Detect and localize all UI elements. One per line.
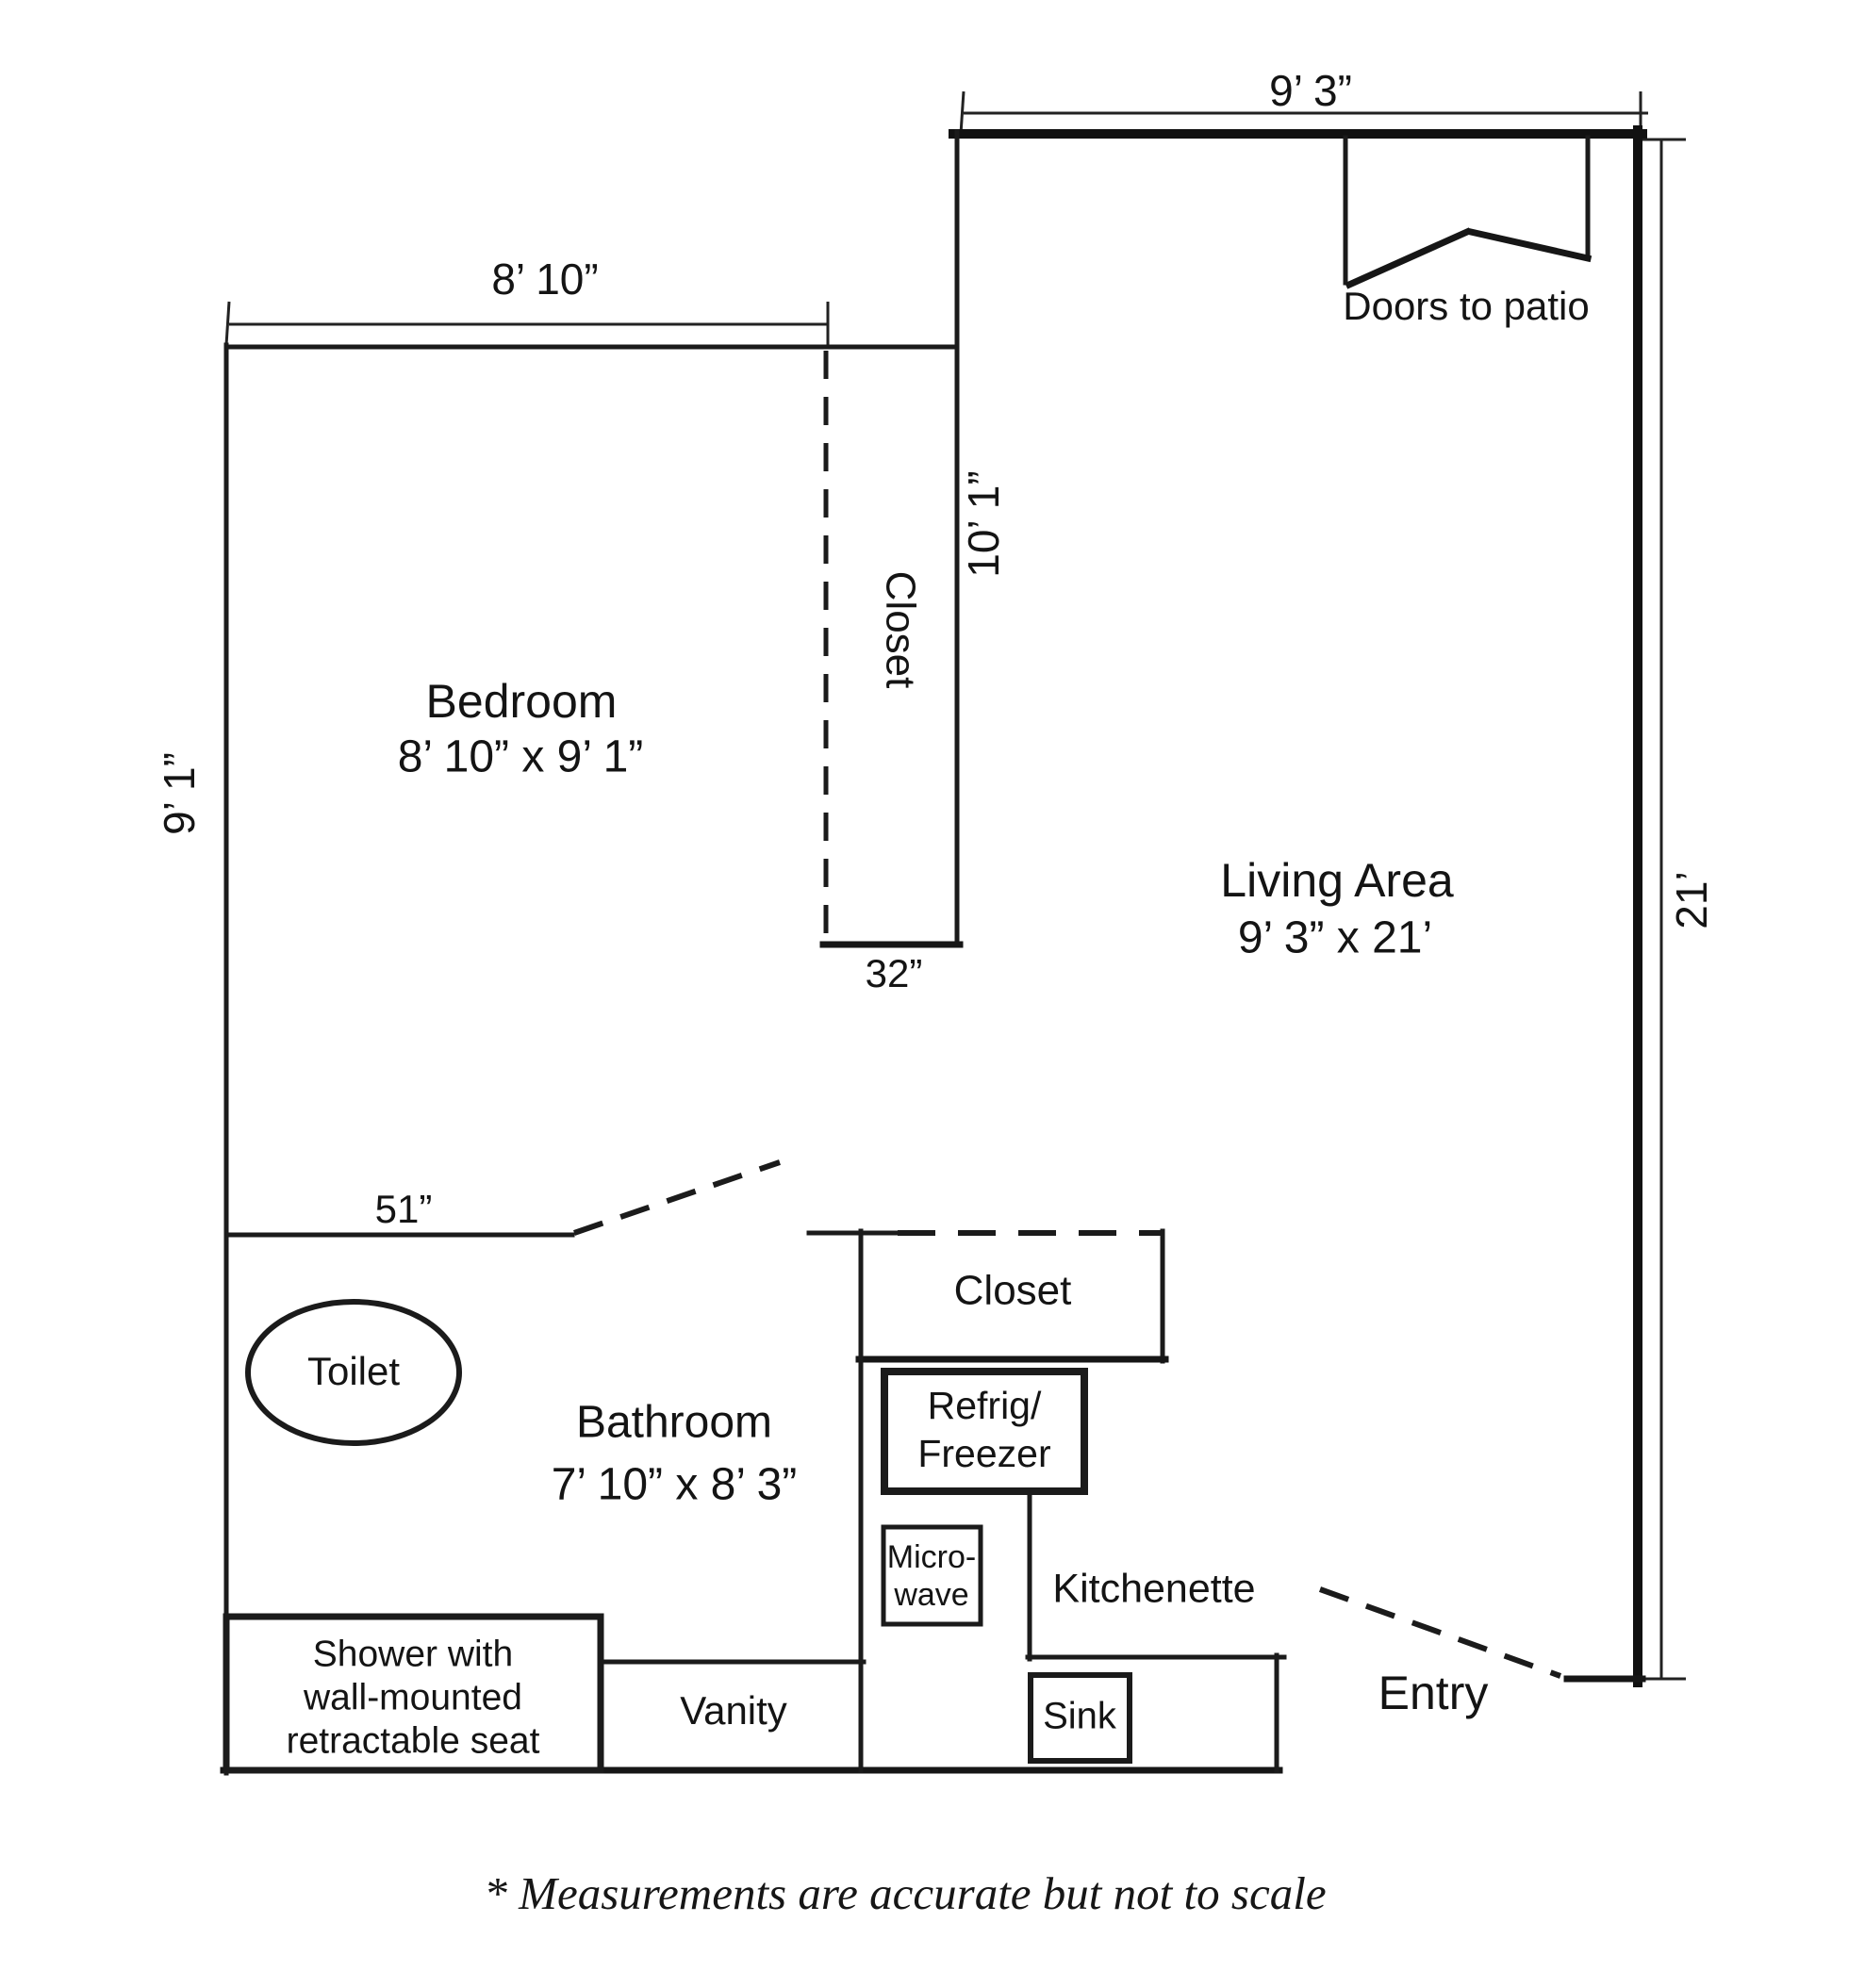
dim-label-bedroom-width: 8’ 10” — [491, 255, 598, 304]
living-area-label: Living Area — [1220, 854, 1454, 907]
shower-label-line2: wall-mounted — [303, 1677, 522, 1717]
refrigerator-label-line1: Refrig/ — [928, 1384, 1042, 1427]
vanity-label: Vanity — [680, 1688, 787, 1733]
microwave-label-line2: wave — [893, 1577, 968, 1613]
bedroom-label: Bedroom — [426, 675, 618, 728]
patio-door-label: Doors to patio — [1343, 284, 1589, 328]
dim-tick-living-width-left — [961, 91, 964, 134]
entry-door-swing-dashed — [1320, 1589, 1560, 1676]
sink-label: Sink — [1043, 1696, 1117, 1737]
dim-label-bathroom-wall: 51” — [375, 1187, 433, 1231]
patio-door-leaf-left — [1349, 232, 1467, 285]
floor-plan-svg: 9’ 3” 21’ 8’ 10” 9’ 1” 10’ 1” Doors to p… — [0, 0, 1865, 1988]
toilet-label: Toilet — [307, 1349, 400, 1393]
dim-label-living-depth: 21’ — [1667, 871, 1716, 928]
microwave-label-line1: Micro- — [887, 1539, 976, 1575]
kitchenette-label: Kitchenette — [1052, 1566, 1255, 1611]
bathroom-door-swing-dashed — [574, 1162, 780, 1233]
shower-label-line3: retractable seat — [287, 1720, 540, 1761]
floor-plan-page: 9’ 3” 21’ 8’ 10” 9’ 1” 10’ 1” Doors to p… — [0, 0, 1865, 1988]
refrigerator-label-line2: Freezer — [917, 1432, 1050, 1475]
dim-label-bedroom-depth: 9’ 1” — [155, 752, 204, 835]
bathroom-label: Bathroom — [576, 1398, 772, 1448]
dim-label-living-width: 9’ 3” — [1269, 66, 1352, 115]
patio-door-leaf-right — [1471, 232, 1588, 258]
dim-label-living-wall: 10’ 1” — [959, 470, 1008, 577]
shower-label-line1: Shower with — [313, 1634, 513, 1674]
living-area-size-label: 9’ 3” x 21’ — [1238, 913, 1432, 963]
bedroom-closet-label: Closet — [877, 571, 923, 689]
footnote: * Measurements are accurate but not to s… — [484, 1867, 1326, 1919]
dim-label-closet-opening: 32” — [866, 951, 923, 995]
dim-tick-bedroom-width-left — [226, 302, 229, 345]
kitchen-closet-label: Closet — [954, 1268, 1072, 1314]
bathroom-size-label: 7’ 10” x 8’ 3” — [552, 1460, 798, 1510]
entry-label: Entry — [1378, 1667, 1489, 1719]
bedroom-size-label: 8’ 10” x 9’ 1” — [398, 732, 644, 782]
